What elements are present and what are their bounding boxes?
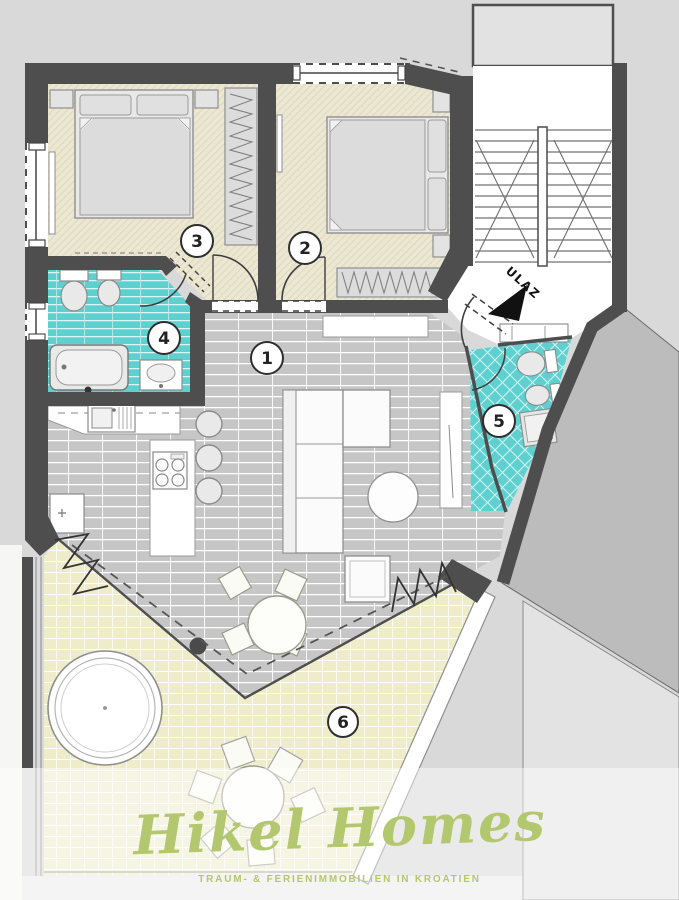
window-bathroom-4 xyxy=(25,303,48,340)
bathtub xyxy=(50,345,128,394)
svg-text:3: 3 xyxy=(191,232,203,252)
sideboard xyxy=(323,316,428,337)
room-badge-3: 3 xyxy=(181,225,213,257)
stair-landing xyxy=(473,5,613,66)
washbasin xyxy=(140,360,182,390)
nightstand xyxy=(50,90,73,108)
stove xyxy=(153,452,187,489)
brand-tagline: TRAUM- & FERIENIMMOBILIEN IN KROATIEN xyxy=(198,874,481,885)
bar-stool xyxy=(196,478,222,504)
chaise xyxy=(343,390,390,447)
radiator xyxy=(49,152,55,234)
coffee-table xyxy=(368,472,418,522)
radiator xyxy=(277,115,282,172)
toilet xyxy=(60,270,88,311)
stair-handrail xyxy=(538,127,547,266)
svg-text:4: 4 xyxy=(158,329,170,349)
fridge xyxy=(50,494,84,533)
bar-stool xyxy=(196,445,222,471)
svg-text:6: 6 xyxy=(337,713,349,733)
floorplan-page: ULAZ 1 2 3 4 5 6 Hikel Homes TRAUM- & FE… xyxy=(0,0,679,900)
svg-text:5: 5 xyxy=(493,412,505,432)
double-bed xyxy=(75,90,193,218)
kitchen-sink xyxy=(88,404,135,432)
nightstand xyxy=(195,90,218,108)
dining-table xyxy=(248,596,306,654)
wardrobe xyxy=(225,88,257,245)
room-badge-4: 4 xyxy=(148,322,180,354)
room-badge-1: 1 xyxy=(251,342,283,374)
svg-text:2: 2 xyxy=(299,239,311,259)
pool xyxy=(48,651,162,765)
ottoman xyxy=(345,556,390,602)
room-badge-6: 6 xyxy=(328,707,358,737)
window-bedroom-2 xyxy=(293,63,405,84)
double-bed xyxy=(327,117,448,233)
bidet xyxy=(97,270,121,306)
wardrobe xyxy=(337,268,442,297)
room-badge-2: 2 xyxy=(289,232,321,264)
window-bedroom-3 xyxy=(25,143,48,247)
room-badge-5: 5 xyxy=(483,405,515,437)
tv-board xyxy=(440,392,462,508)
floorplan-drawing: ULAZ 1 2 3 4 5 6 xyxy=(0,0,679,900)
svg-text:1: 1 xyxy=(261,349,273,369)
bar-stool xyxy=(196,411,222,437)
